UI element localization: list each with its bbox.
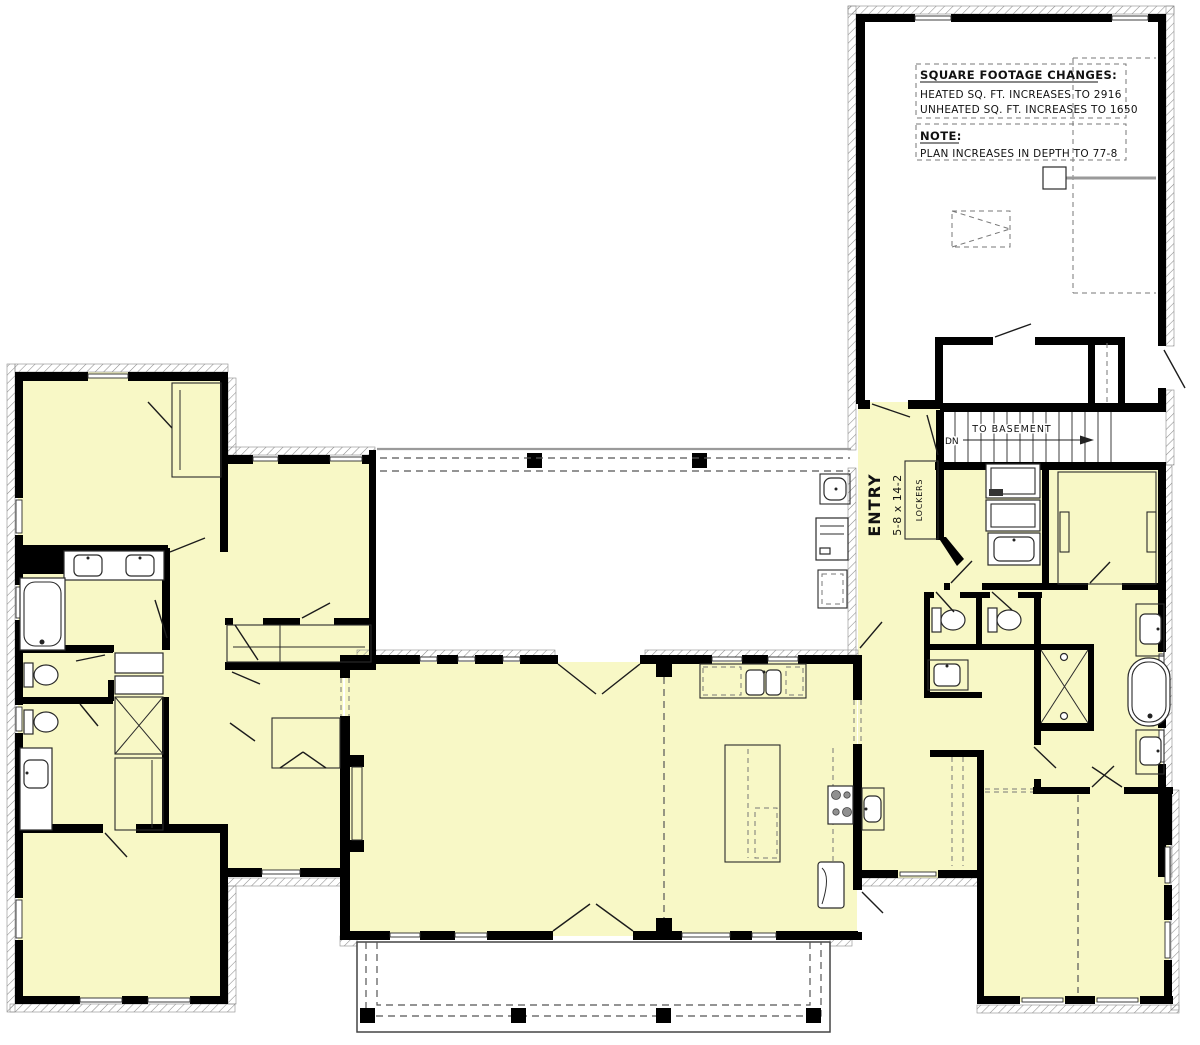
stairs-dn-label: DN [945, 437, 959, 447]
linen-closet [115, 653, 163, 694]
heated-sqft-note: HEATED SQ. FT. INCREASES TO 2916 [920, 89, 1122, 101]
unheated-sqft-note: UNHEATED SQ. FT. INCREASES TO 1650 [920, 104, 1138, 116]
depth-note: PLAN INCREASES IN DEPTH TO 77-8 [920, 148, 1118, 160]
toilet-icon [24, 663, 58, 687]
lockers-label: LOCKERS [915, 479, 924, 522]
entry-room-label: ENTRY [865, 473, 884, 536]
stairs-label: TO BASEMENT [971, 424, 1051, 435]
toilet-icon [24, 710, 58, 734]
vanity-sink-fixture [20, 748, 52, 830]
sqft-changes-title: SQUARE FOOTAGE CHANGES: [920, 68, 1117, 82]
rear-porch [357, 942, 830, 1032]
washer-dryer [986, 464, 1040, 531]
laundry-sink [988, 533, 1040, 565]
freestanding-tub [1128, 658, 1170, 726]
range-cooktop [828, 786, 853, 824]
floor-plan-canvas: SQUARE FOOTAGE CHANGES: HEATED SQ. FT. I… [0, 0, 1200, 1045]
double-vanity-fixture [64, 551, 164, 580]
wall-oven [818, 862, 844, 908]
toilet-icon [932, 608, 965, 632]
note-title: NOTE: [920, 129, 962, 143]
bathtub-fixture [20, 578, 65, 650]
toilet-icon [988, 608, 1021, 632]
floor-plan-page: SQUARE FOOTAGE CHANGES: HEATED SQ. FT. I… [0, 0, 1200, 1045]
entry-dims-label: 5-8 x 14-2 [891, 474, 904, 535]
